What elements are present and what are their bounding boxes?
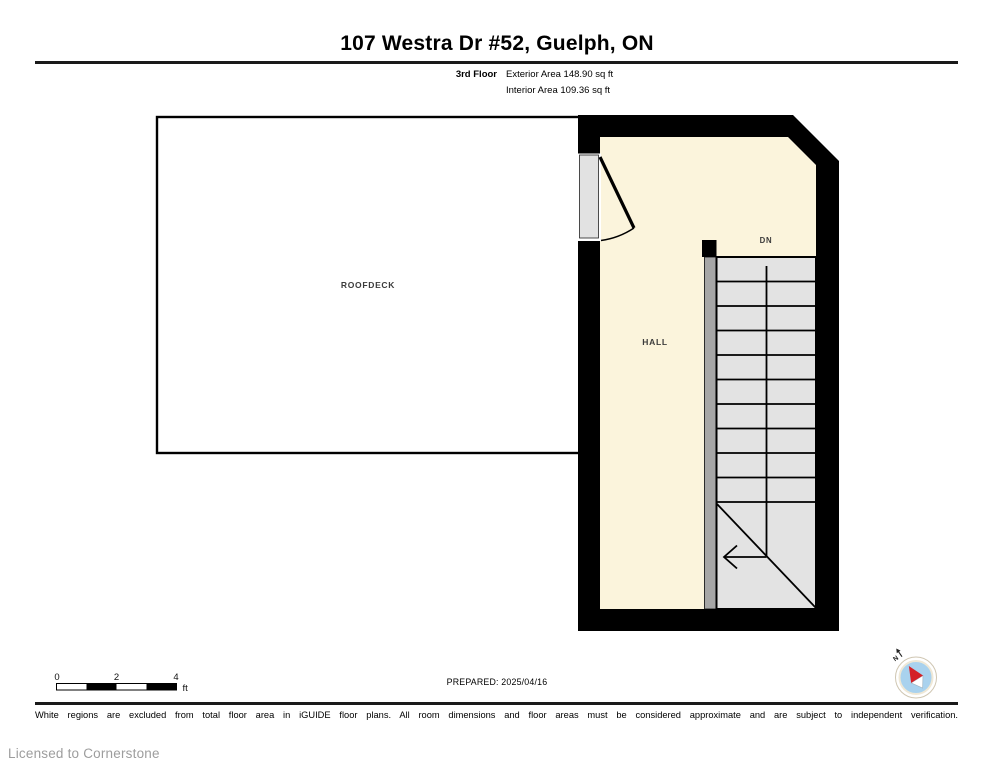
room-label-roofdeck: ROOFDECK	[341, 280, 395, 290]
compass-north-label: N	[892, 655, 900, 664]
floor-plan-canvas: ROOFDECK HALL DN 0 2 4 ft N	[0, 0, 994, 768]
page-title: 107 Westra Dr #52, Guelph, ON	[0, 32, 994, 56]
disclaimer-text: White regions are excluded from total fl…	[35, 710, 958, 721]
floor-label: 3rd Floor	[0, 69, 497, 80]
room-label-hall: HALL	[642, 337, 667, 347]
stairs-dn-label: DN	[760, 236, 773, 245]
header-divider	[35, 61, 958, 64]
prepared-date: PREPARED: 2025/04/16	[0, 677, 994, 687]
interior-area-text: Interior Area 109.36 sq ft	[506, 85, 610, 96]
door-slab	[580, 155, 599, 238]
staircase	[702, 240, 816, 609]
footer-divider	[35, 702, 958, 705]
stair-stringer	[705, 257, 717, 609]
compass-north-marker: N	[889, 647, 905, 663]
exterior-area-text: Exterior Area 148.90 sq ft	[506, 69, 613, 80]
compass-icon: N	[889, 647, 936, 698]
stair-newel-post	[702, 240, 717, 257]
license-text: Licensed to Cornerstone	[8, 746, 160, 761]
